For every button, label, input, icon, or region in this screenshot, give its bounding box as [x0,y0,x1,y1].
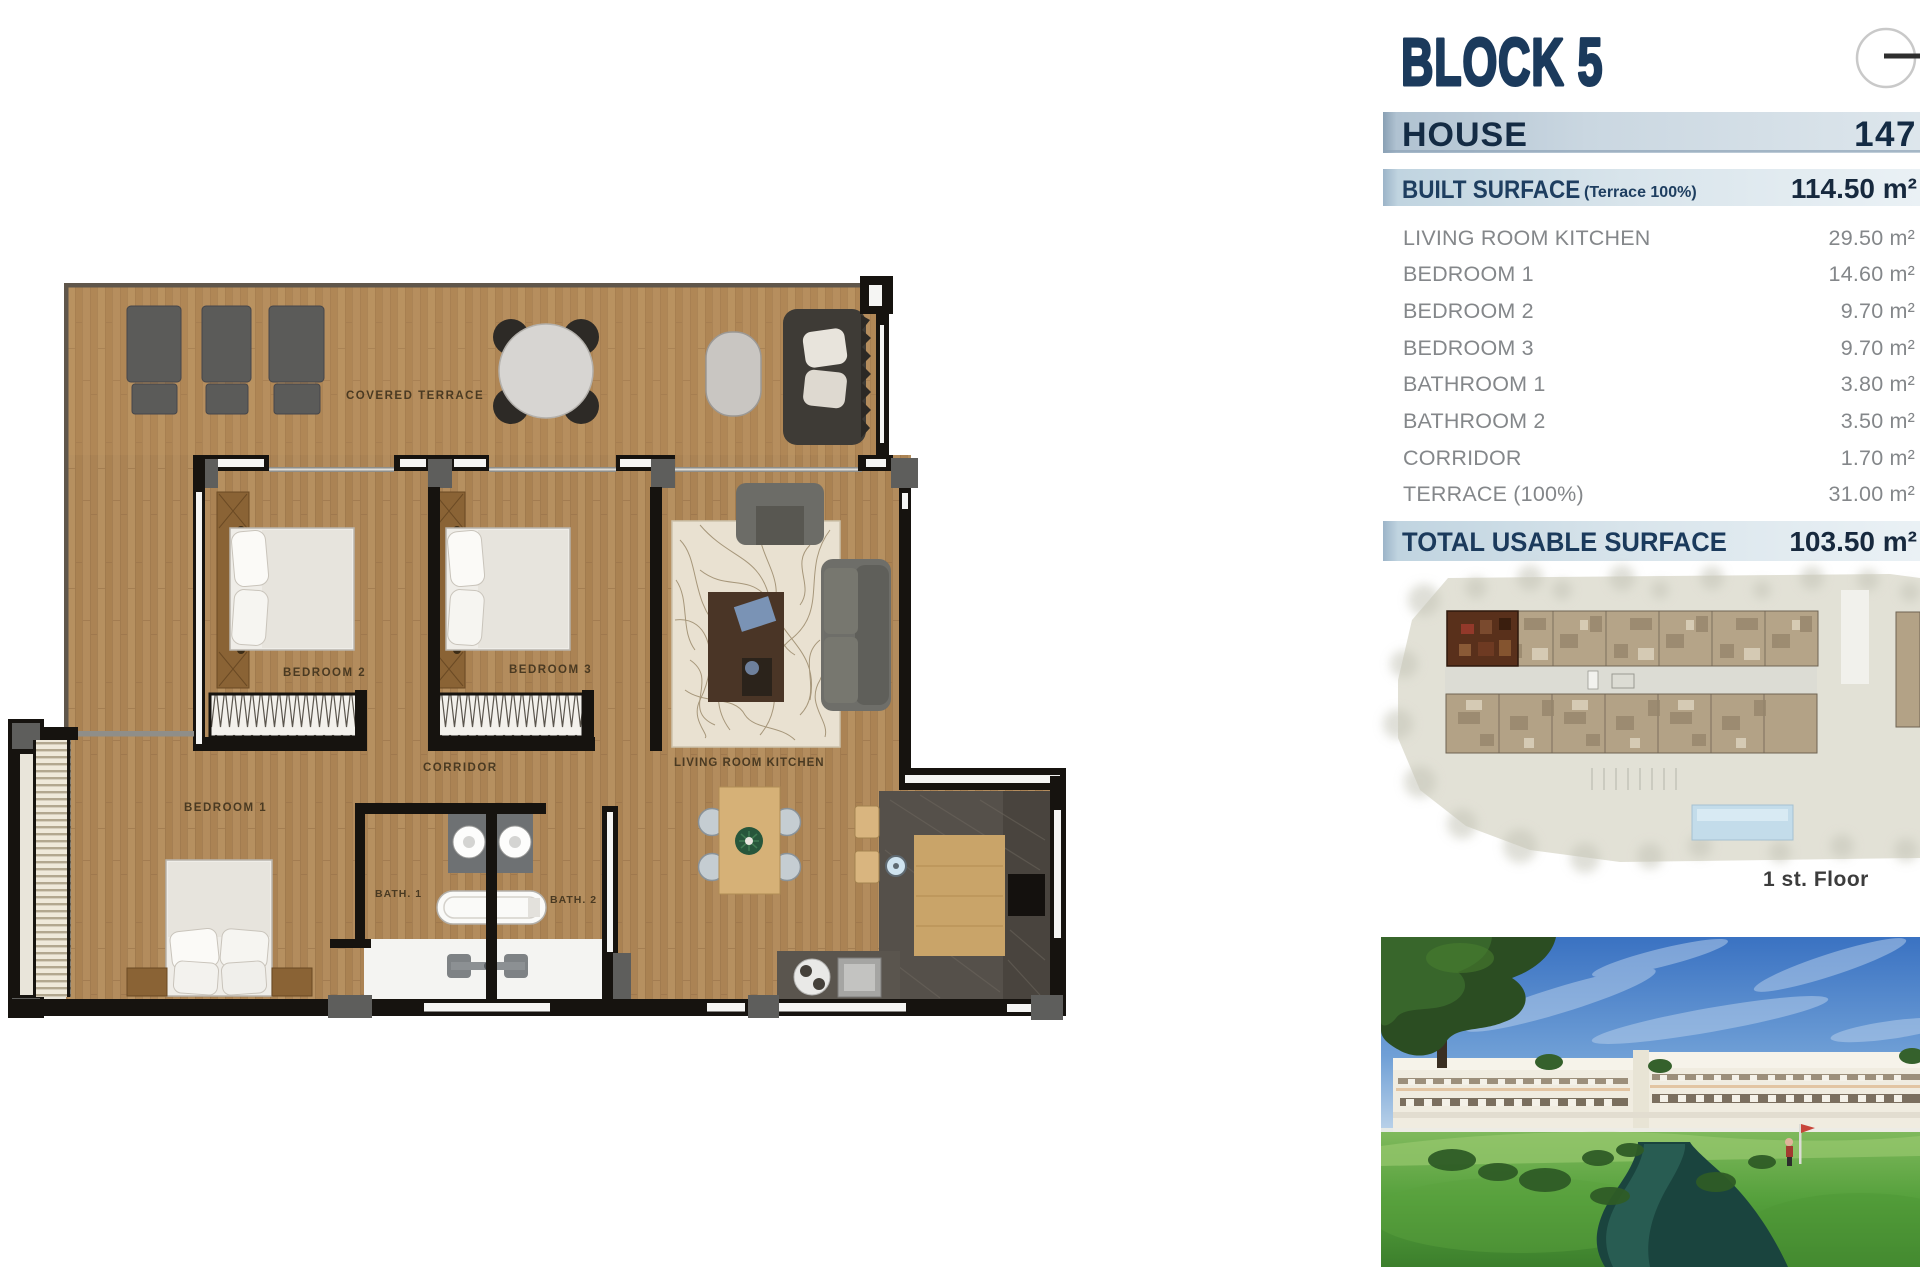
svg-text:BATHROOM 1: BATHROOM 1 [1403,372,1546,396]
svg-text:BEDROOM 2: BEDROOM 2 [1403,299,1534,323]
svg-text:BEDROOM 3: BEDROOM 3 [1403,336,1534,360]
svg-text:BEDROOM 2: BEDROOM 2 [283,667,366,679]
svg-text:CORRIDOR: CORRIDOR [423,762,498,774]
svg-text:LIVING ROOM KITCHEN: LIVING ROOM KITCHEN [674,757,825,769]
svg-text:BATH. 2: BATH. 2 [550,894,597,906]
svg-text:1 st. Floor: 1 st. Floor [1763,868,1869,891]
svg-text:(Terrace 100%): (Terrace 100%) [1584,184,1697,201]
svg-text:BEDROOM 3: BEDROOM 3 [509,664,592,676]
svg-text:CORRIDOR: CORRIDOR [1403,446,1522,470]
svg-text:3.80 m²: 3.80 m² [1841,372,1915,396]
svg-text:TOTAL USABLE SURFACE: TOTAL USABLE SURFACE [1402,526,1727,557]
svg-text:BATH. 1: BATH. 1 [375,888,422,900]
svg-text:1.70 m²: 1.70 m² [1841,446,1915,470]
svg-text:BEDROOM 1: BEDROOM 1 [184,802,267,814]
svg-text:BUILT SURFACE: BUILT SURFACE [1402,176,1580,204]
svg-text:147: 147 [1854,115,1917,154]
svg-text:31.00 m²: 31.00 m² [1829,482,1915,506]
svg-text:3.50 m²: 3.50 m² [1841,409,1915,433]
svg-text:BEDROOM 1: BEDROOM 1 [1403,262,1534,286]
svg-text:LIVING ROOM KITCHEN: LIVING ROOM KITCHEN [1403,226,1651,250]
svg-text:TERRACE (100%): TERRACE (100%) [1403,482,1584,506]
svg-text:BATHROOM 2: BATHROOM 2 [1403,409,1546,433]
svg-text:9.70 m²: 9.70 m² [1841,336,1915,360]
svg-text:BLOCK 5: BLOCK 5 [1401,25,1603,100]
svg-text:103.50 m²: 103.50 m² [1789,526,1917,557]
svg-text:COVERED TERRACE: COVERED TERRACE [346,390,484,402]
svg-text:114.50 m²: 114.50 m² [1791,173,1917,204]
svg-text:9.70 m²: 9.70 m² [1841,299,1915,323]
svg-text:HOUSE: HOUSE [1402,116,1528,154]
svg-text:14.60 m²: 14.60 m² [1829,262,1915,286]
svg-text:29.50 m²: 29.50 m² [1829,226,1915,250]
